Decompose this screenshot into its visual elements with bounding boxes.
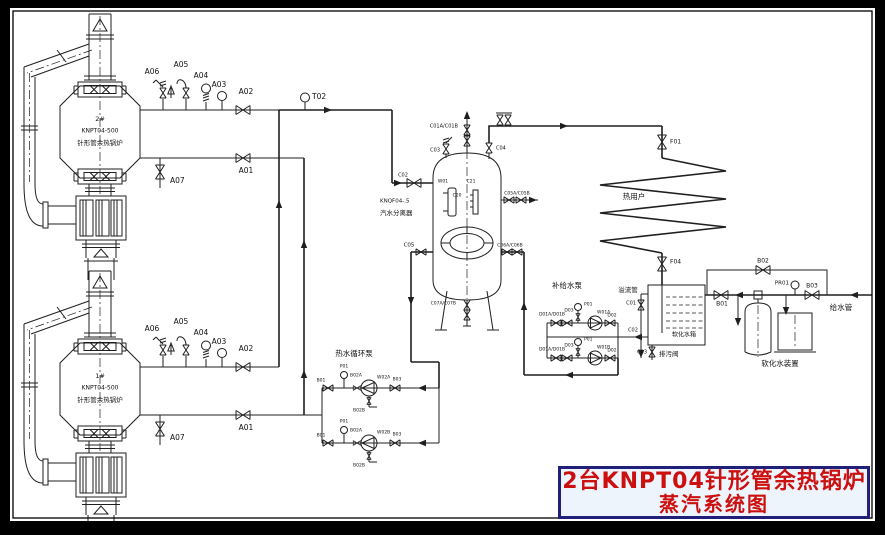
tag-c06ab: C06A/C06B xyxy=(497,243,522,249)
tag-c21: C21 xyxy=(467,179,476,185)
title-block: 2台KNPT04针形管余热锅炉 蒸汽系统图 xyxy=(558,466,870,519)
tag-c02-vessel: C02 xyxy=(398,173,408,179)
tag-a07-b2: A07 xyxy=(170,433,185,442)
title-line-2: 蒸汽系统图 xyxy=(659,494,769,515)
tag-d01ab-bot: D01A/D01B xyxy=(539,347,565,353)
tag-w02b: W02B xyxy=(377,430,390,436)
boiler2-model: KNPT04-500 xyxy=(82,385,119,392)
tag-d01ab-top: D01A/D01B xyxy=(539,312,565,318)
tag-b01-circ-top: B01 xyxy=(317,378,326,384)
separator-model: KNQF04-.5 xyxy=(380,199,410,205)
tag-f01: F01 xyxy=(670,139,681,146)
boi​ler1-number: 2# xyxy=(95,115,105,123)
tag-b03-circ-top: B03 xyxy=(393,377,402,383)
softener-unit-label: 软化水装置 xyxy=(761,358,799,368)
tag-d02-bot: D02 xyxy=(607,348,616,354)
tag-a03-b2: A03 xyxy=(212,337,227,346)
tag-a06-b1: A06 xyxy=(145,67,160,76)
drawing-sheet xyxy=(10,8,875,521)
tag-p01-feed-bot: P01 xyxy=(584,337,593,343)
boiler1-name: 针形管余热锅炉 xyxy=(77,138,123,147)
tag-a02-b1: A02 xyxy=(239,87,254,96)
heat-user-label: 热用户 xyxy=(623,191,646,201)
piping-diagram: A06A05A04A03A02A01A072#KNPT04-500针形管余热锅炉… xyxy=(0,0,885,535)
tag-p01-circ-bot: P01 xyxy=(340,419,349,425)
tag-w02a: W02A xyxy=(377,375,391,381)
tag-b02b-top: B02B xyxy=(353,408,365,414)
softened-water-tank-label: 软化水箱 xyxy=(672,331,696,339)
tag-c04: C04 xyxy=(496,146,506,152)
feedwater-pipe-label: 给水管 xyxy=(830,302,853,312)
tag-a02-b2: A02 xyxy=(239,344,254,353)
tag-b02a-top: B02A xyxy=(350,373,363,379)
tag-p01-circ-top: P01 xyxy=(340,364,349,370)
overflow-pipe-label: 溢流管 xyxy=(618,285,638,294)
tag-f04: F04 xyxy=(670,259,681,266)
tag-b02b-bot: B02B xyxy=(353,463,365,469)
tag-c01-tank: C01 xyxy=(626,301,636,307)
tag-a03-b1: A03 xyxy=(212,80,227,89)
tag-a04-b2: A04 xyxy=(194,328,209,337)
boiler2-number: 1# xyxy=(95,372,105,380)
tag-b02-fw: B02 xyxy=(757,258,769,265)
tag-c03-tank: C03 xyxy=(637,350,647,356)
circulation-pump-label: 热水循环泵 xyxy=(335,348,373,358)
tag-a04-b1: A04 xyxy=(194,71,209,80)
tag-d03-bot: D03 xyxy=(564,343,573,349)
separator-name: 汽水分离器 xyxy=(380,208,413,217)
tag-p01-feed-top: P01 xyxy=(584,302,593,308)
title-line-1: 2台KNPT04针形管余热锅炉 xyxy=(562,470,866,493)
tag-d03-top: D03 xyxy=(564,308,573,314)
boiler2-name: 针形管余热锅炉 xyxy=(77,395,123,404)
tag-a01-b1: A01 xyxy=(239,166,254,175)
tag-b01-circ-bot: B01 xyxy=(317,433,326,439)
tag-w01: W01 xyxy=(438,179,448,185)
tag-a05-b1: A05 xyxy=(174,60,189,69)
tag-b01-fw: B01 xyxy=(716,301,728,308)
tag-b03-circ-bot: B03 xyxy=(393,432,402,438)
tag-a07-b1: A07 xyxy=(170,176,185,185)
feedwater-pump-label: 补给水泵 xyxy=(552,280,582,290)
blowdown-valve-label: 排污阀 xyxy=(659,349,679,358)
tag-c03-vessel: C03 xyxy=(430,148,440,154)
boiler1-model: KNPT04-500 xyxy=(82,128,119,135)
tag-pr01: PR01 xyxy=(775,281,789,287)
tag-c07ab: C07A/C07B xyxy=(431,301,456,307)
tag-a06-b2: A06 xyxy=(145,324,160,333)
tag-d02-top: D02 xyxy=(607,313,616,319)
tag-c02-tank: C02 xyxy=(628,328,638,334)
tag-a01-b2: A01 xyxy=(239,423,254,432)
tag-a05-b2: A05 xyxy=(174,317,189,326)
tag-t02: T02 xyxy=(311,92,326,101)
tag-c05: C05 xyxy=(404,243,415,249)
tag-c01ab: C01A/C01B xyxy=(430,124,459,130)
tag-b02a-bot: B02A xyxy=(350,428,363,434)
tag-b03-fw: B03 xyxy=(806,283,818,290)
diagram-canvas: A06A05A04A03A02A01A072#KNPT04-500针形管余热锅炉… xyxy=(0,0,885,535)
tag-c05ab: C05A/C05B xyxy=(504,191,529,197)
tag-c20: C20 xyxy=(453,193,462,199)
